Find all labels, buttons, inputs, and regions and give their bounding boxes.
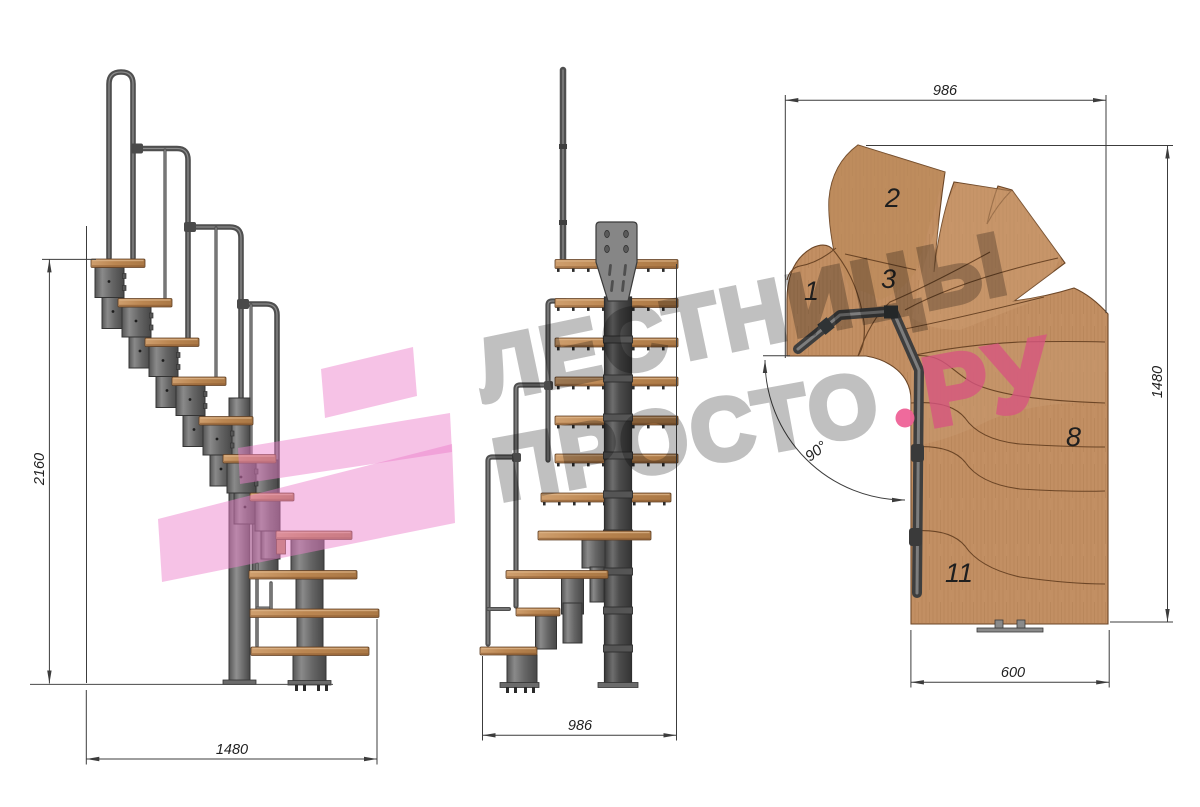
svg-text:986: 986: [933, 83, 958, 99]
svg-text:1480: 1480: [216, 742, 248, 758]
svg-text:1480: 1480: [1150, 366, 1166, 398]
svg-text:2160: 2160: [32, 453, 48, 486]
svg-text:11: 11: [945, 558, 973, 588]
svg-text:986: 986: [568, 718, 593, 734]
svg-text:8: 8: [1066, 422, 1081, 452]
svg-text:2: 2: [884, 183, 900, 213]
svg-text:РУ: РУ: [914, 316, 1061, 448]
svg-text:600: 600: [1001, 665, 1025, 681]
